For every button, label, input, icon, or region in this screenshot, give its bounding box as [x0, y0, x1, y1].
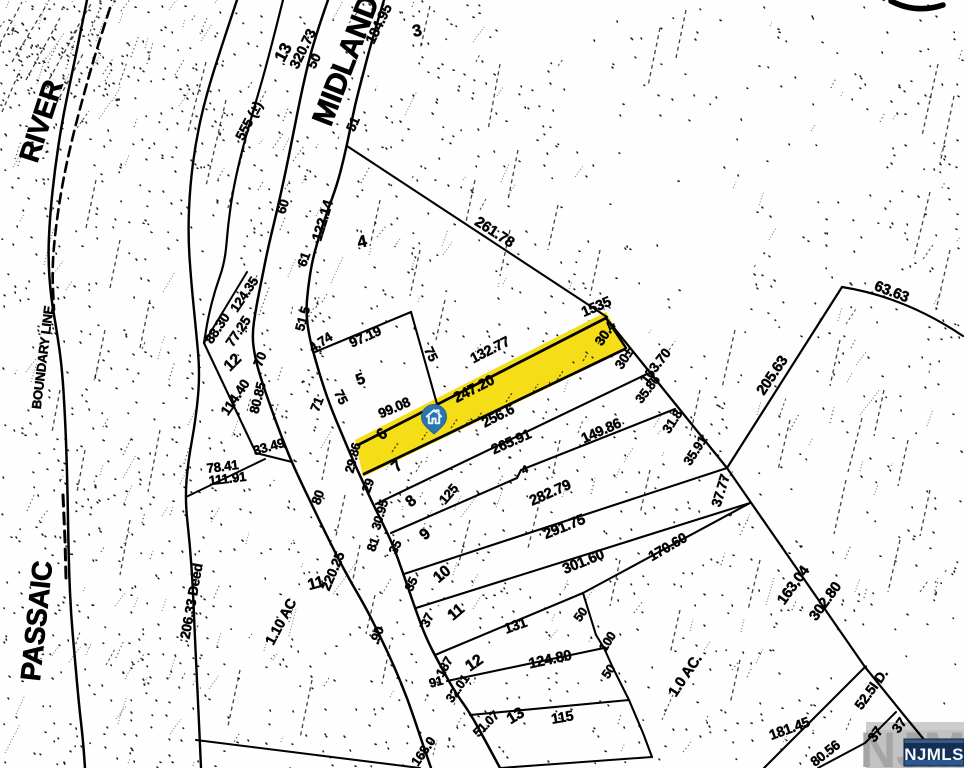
svg-text:NJMLS: NJMLS	[904, 745, 964, 764]
